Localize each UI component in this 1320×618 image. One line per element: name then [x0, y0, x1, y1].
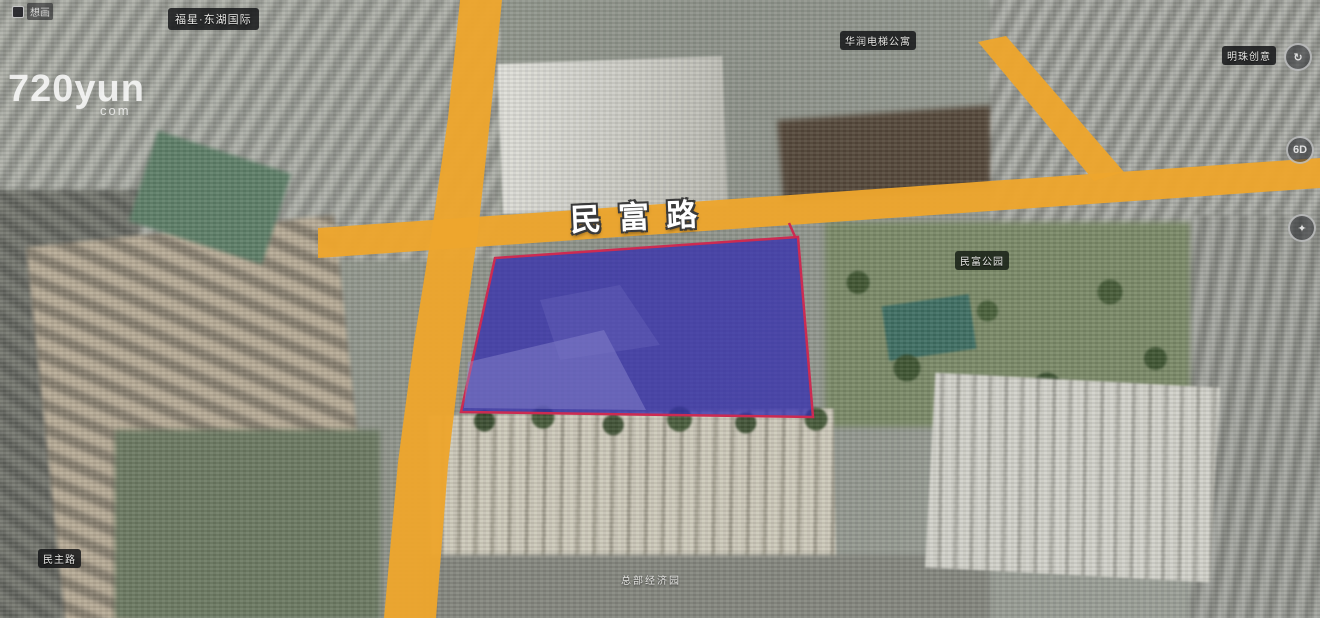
hotspot-rotate-icon[interactable]: ↻	[1284, 43, 1312, 71]
hotspot-glyph: ↻	[1293, 51, 1302, 64]
panorama-viewer[interactable]: 民富路 福星·东湖国际 华润电梯公寓 明珠创意 民富公园 民主路 总部经济园 ↻…	[0, 0, 1320, 618]
hotspot-6d-icon[interactable]: 6D	[1286, 136, 1314, 164]
poi-label-bottom-left[interactable]: 民主路	[38, 549, 81, 568]
road-label-minfulu: 民富路	[569, 187, 741, 239]
poi-label-bottom-center: 总部经济园	[616, 570, 686, 589]
map-overlay	[0, 0, 1320, 618]
watermark-icon	[12, 6, 24, 18]
hotspot-star-icon[interactable]: ✦	[1288, 214, 1316, 242]
watermark-text: 想画	[27, 3, 53, 20]
author-watermark: 想画	[12, 3, 53, 20]
hotspot-glyph: 6D	[1293, 144, 1307, 156]
hotspot-glyph: ✦	[1297, 222, 1306, 235]
logo-suffix: com	[100, 104, 131, 117]
poi-label-top-right[interactable]: 明珠创意	[1222, 46, 1276, 65]
720yun-logo[interactable]: 720yun com	[8, 70, 145, 108]
poi-label-top-middle[interactable]: 华润电梯公寓	[840, 31, 916, 50]
poi-label-top-left[interactable]: 福星·东湖国际	[168, 8, 259, 30]
road-diagonal-topright	[978, 36, 1124, 181]
poi-label-park[interactable]: 民富公园	[955, 251, 1009, 270]
